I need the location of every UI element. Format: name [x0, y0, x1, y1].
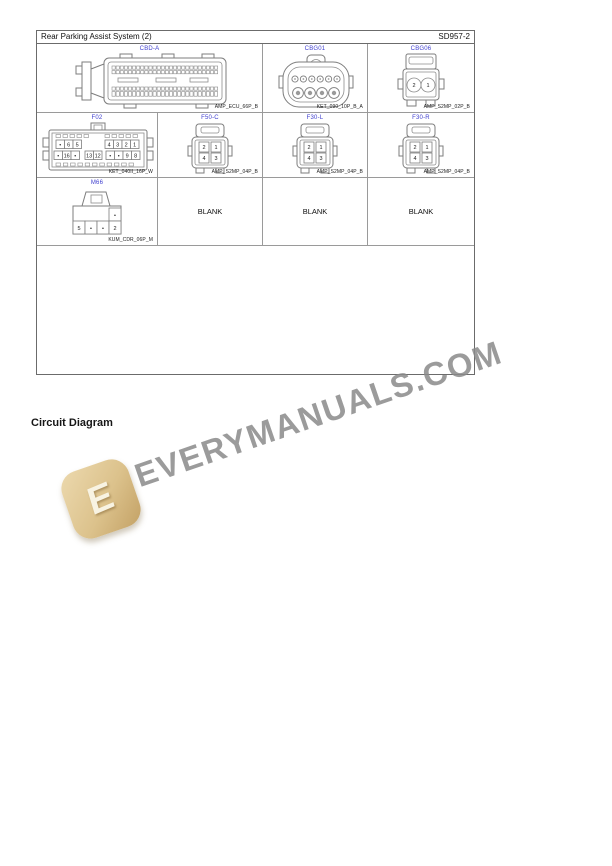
svg-text:1: 1 [214, 145, 217, 151]
connector-label-cbd-a: CBD-A [37, 46, 262, 52]
svg-text:8: 8 [134, 153, 137, 159]
cell-f30-r: F30-R 2 1 4 3 AMP_S2MP_04P_B [368, 113, 474, 178]
cell-f30-l: F30-L 2 1 4 3 AMP_S2MP_04P_B [263, 113, 368, 178]
svg-text:12: 12 [95, 153, 101, 159]
connector-drawing-f02: • 6 5 4 3 2 1 [43, 123, 153, 173]
system-title: Rear Parking Assist System (2) [41, 31, 152, 43]
svg-text:13: 13 [86, 153, 92, 159]
svg-text:2: 2 [113, 226, 116, 232]
connector-label-m66: M66 [37, 180, 157, 186]
svg-text:4: 4 [413, 156, 416, 162]
part-number-f30-l: AMP_S2MP_04P_B [317, 169, 363, 175]
svg-text:2: 2 [413, 145, 416, 151]
part-number-f02: KET_040II_16P_W [109, 169, 153, 175]
part-number-f50-c: AMP_S2MP_04P_B [212, 169, 258, 175]
svg-text:4: 4 [202, 156, 205, 162]
svg-text:2: 2 [202, 145, 205, 151]
connector-diagram-table: Rear Parking Assist System (2) SD957-2 C… [36, 30, 475, 375]
cell-empty-area [37, 246, 474, 374]
cell-cbd-a: CBD-A AMP_ECU_66P_ [37, 44, 263, 113]
part-number-cbg06: AMP_S2MP_02P_B [424, 104, 470, 110]
cell-cbg01: CBG01 KET_090_10P_B_A [263, 44, 368, 113]
svg-text:•: • [109, 153, 111, 159]
svg-text:3: 3 [319, 156, 322, 162]
svg-text:4: 4 [307, 156, 310, 162]
svg-text:•: • [74, 153, 76, 159]
cell-blank-1: BLANK [158, 178, 263, 246]
part-number-f30-r: AMP_S2MP_04P_B [424, 169, 470, 175]
connector-label-f50-c: F50-C [158, 115, 262, 121]
manual-page: Rear Parking Assist System (2) SD957-2 C… [0, 0, 612, 866]
svg-text:4: 4 [108, 142, 111, 148]
svg-text:1: 1 [133, 142, 136, 148]
svg-text:3: 3 [425, 156, 428, 162]
section-heading: Circuit Diagram [31, 417, 113, 429]
svg-text:•: • [118, 153, 120, 159]
svg-text:•: • [102, 226, 104, 232]
diagram-code: SD957-2 [438, 31, 470, 43]
connector-label-f30-l: F30-L [263, 115, 367, 121]
svg-text:3: 3 [214, 156, 217, 162]
svg-text:5: 5 [77, 226, 80, 232]
svg-text:1: 1 [319, 145, 322, 151]
svg-text:1: 1 [426, 83, 429, 89]
connector-drawing-m66: • 5 • • 2 [65, 190, 129, 238]
svg-text:5: 5 [76, 142, 79, 148]
f02-pin-row-bottom: • 16 • 13 12 • • 9 8 [54, 151, 140, 160]
svg-text:•: • [90, 226, 92, 232]
svg-text:6: 6 [67, 142, 70, 148]
connector-label-f02: F02 [37, 115, 157, 121]
blank-label: BLANK [368, 178, 474, 245]
blank-label: BLANK [263, 178, 367, 245]
diagram-header: Rear Parking Assist System (2) SD957-2 [37, 31, 474, 44]
svg-text:•: • [57, 153, 59, 159]
svg-text:3: 3 [116, 142, 119, 148]
cell-cbg06: CBG06 2 1 AMP_S2MP_02P_B [368, 44, 474, 113]
cell-blank-2: BLANK [263, 178, 368, 246]
connector-label-cbg06: CBG06 [368, 46, 474, 52]
cell-m66: M66 • 5 • • 2 KUM_CDR_06P_M [37, 178, 158, 246]
cell-f50-c: F50-C 2 1 4 3 AMP_S2MP_04P_B [158, 113, 263, 178]
connector-label-f30-r: F30-R [368, 115, 474, 121]
svg-text:2: 2 [125, 142, 128, 148]
svg-text:•: • [114, 213, 116, 219]
connector-drawing-cbd-a [68, 53, 232, 109]
part-number-cbg01: KET_090_10P_B_A [317, 104, 363, 110]
svg-text:9: 9 [126, 153, 129, 159]
cell-f02: F02 [37, 113, 158, 178]
svg-text:2: 2 [412, 83, 415, 89]
blank-label: BLANK [158, 178, 262, 245]
svg-text:•: • [59, 142, 61, 148]
svg-text:16: 16 [64, 153, 70, 159]
svg-text:2: 2 [307, 145, 310, 151]
watermark-logo-letter: E [83, 473, 119, 524]
part-number-cbd-a: AMP_ECU_66P_B [215, 104, 258, 110]
connector-drawing-cbg01 [279, 53, 353, 109]
cell-blank-3: BLANK [368, 178, 474, 246]
svg-text:1: 1 [425, 145, 428, 151]
connector-label-cbg01: CBG01 [263, 46, 367, 52]
connector-drawing-cbg06: 2 1 [398, 53, 444, 109]
part-number-m66: KUM_CDR_06P_M [108, 237, 153, 243]
